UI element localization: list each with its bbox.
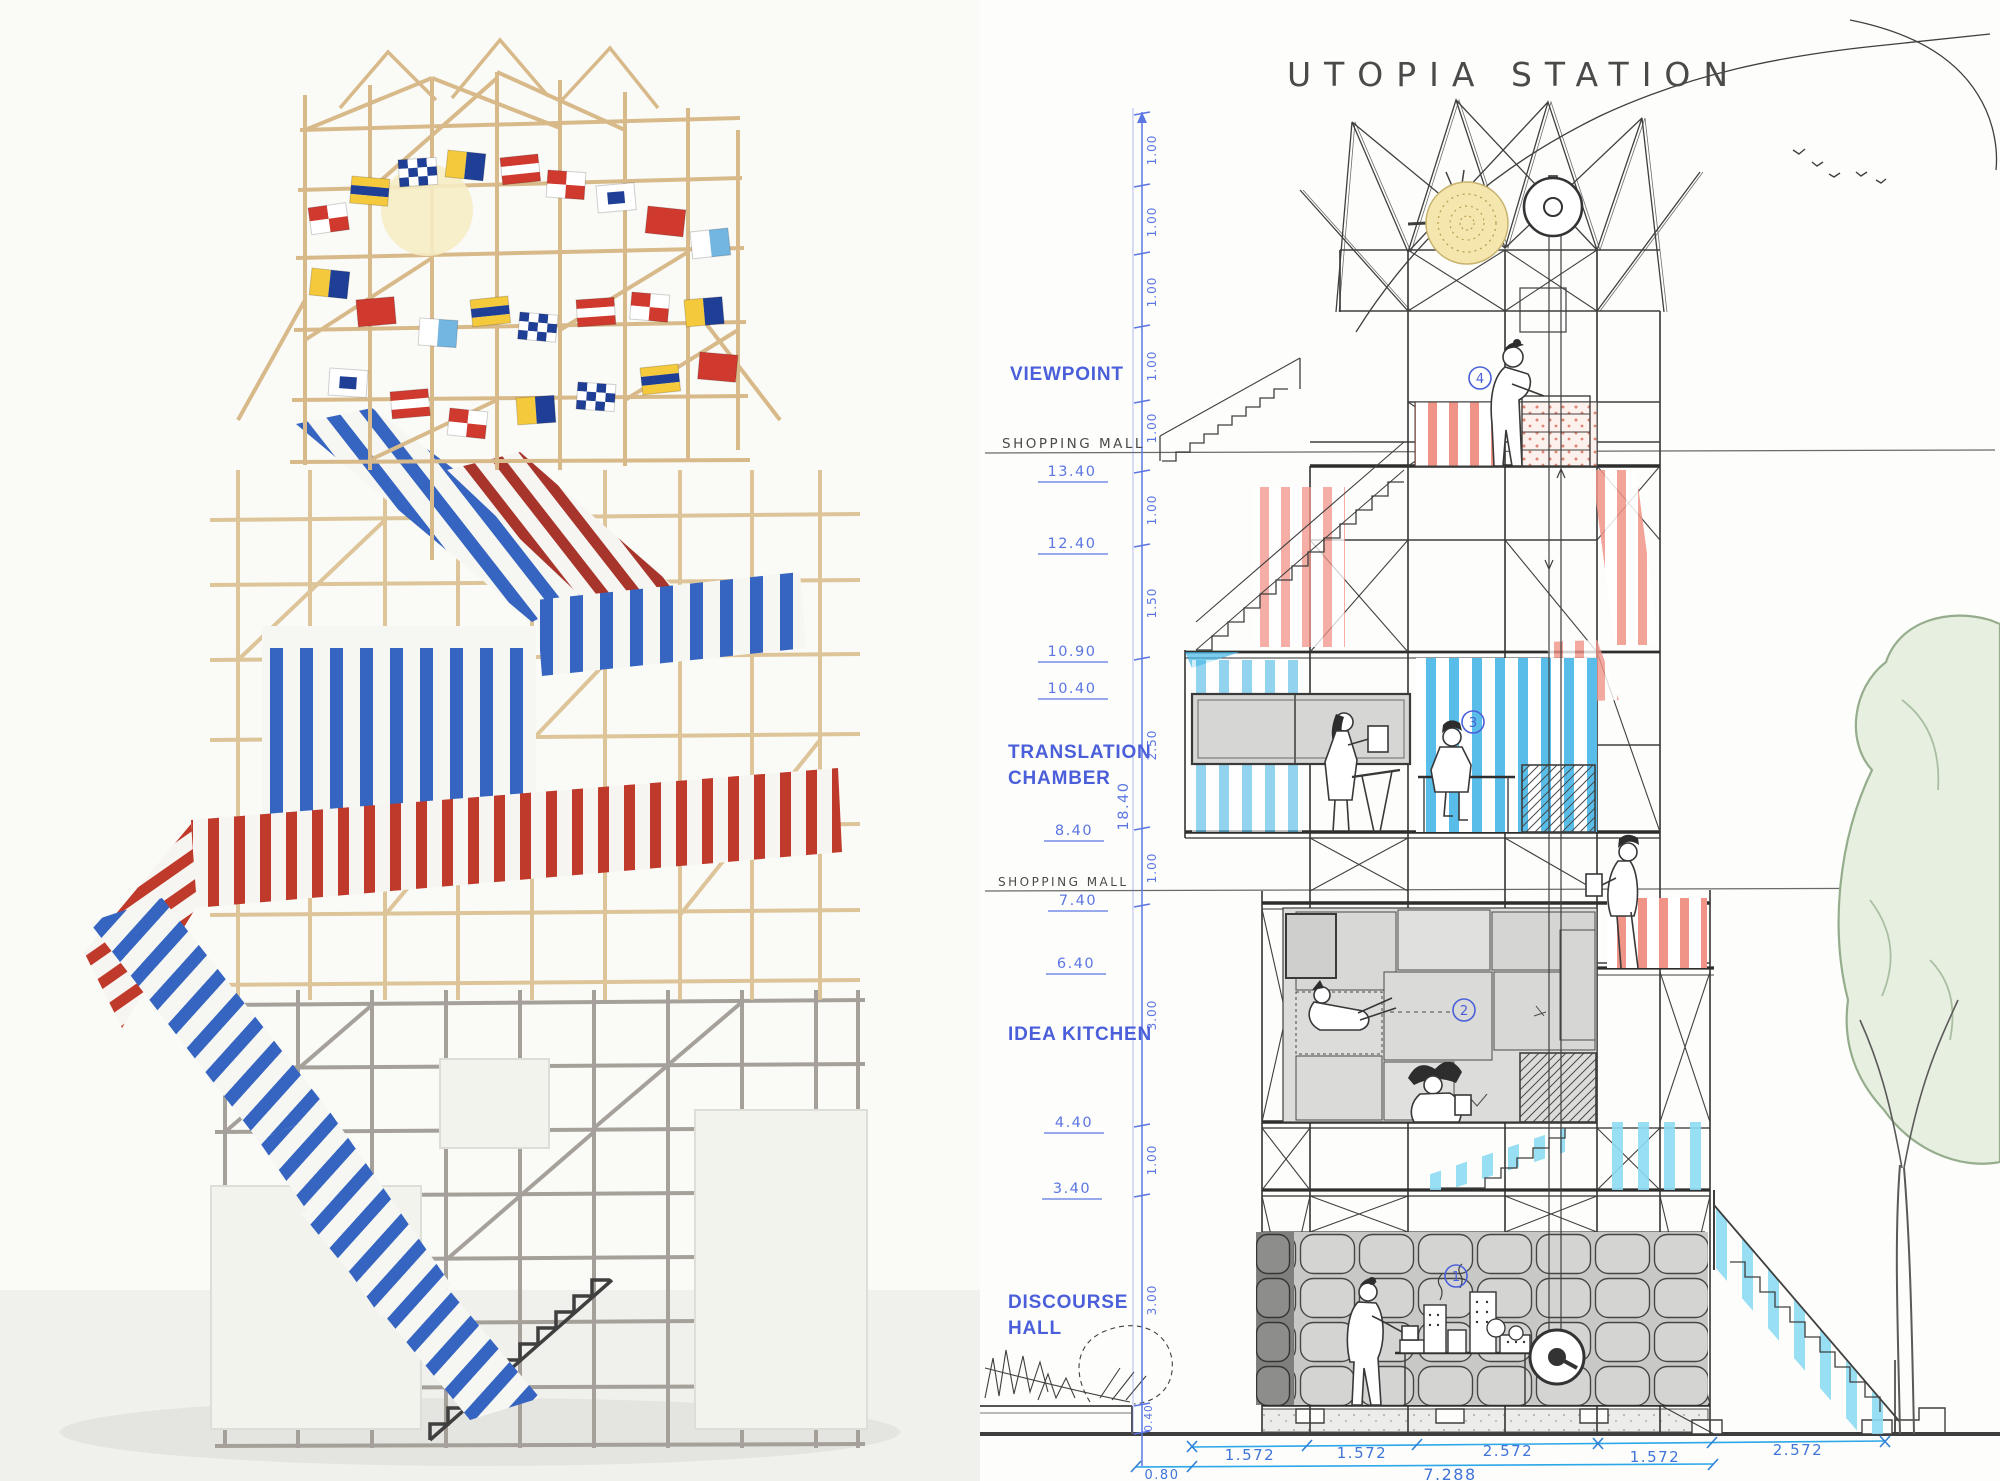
svg-text:1: 1 bbox=[1452, 1270, 1460, 1285]
svg-text:1.50: 1.50 bbox=[1145, 588, 1159, 619]
total-height-label: 18.40 bbox=[1116, 781, 1132, 830]
svg-text:4.40: 4.40 bbox=[1055, 1115, 1093, 1131]
signal-flag-nw-icon bbox=[328, 368, 368, 398]
signal-flag-rh-icon bbox=[500, 154, 541, 185]
svg-text:8.40: 8.40 bbox=[1055, 823, 1093, 839]
pulley-wheel-top bbox=[1524, 176, 1582, 236]
svg-text:12.40: 12.40 bbox=[1047, 536, 1096, 552]
svg-text:1.00: 1.00 bbox=[1145, 853, 1159, 884]
utopia-station-board: UTOPIA STATION bbox=[0, 0, 2000, 1481]
signal-flag-ck-icon bbox=[518, 312, 558, 342]
svg-text:3: 3 bbox=[1469, 716, 1477, 731]
svg-text:2: 2 bbox=[1460, 1004, 1468, 1019]
signal-flag-rd-icon bbox=[645, 206, 686, 237]
model-tree bbox=[1487, 1319, 1505, 1337]
svg-text:0.40: 0.40 bbox=[1143, 1404, 1155, 1431]
hatched-panel bbox=[1522, 765, 1595, 832]
pulley-wheel-bottom bbox=[1530, 1330, 1584, 1384]
signal-flag-ys-icon bbox=[640, 364, 681, 395]
svg-text:2.572: 2.572 bbox=[1483, 1442, 1533, 1460]
svg-text:1.00: 1.00 bbox=[1145, 1145, 1159, 1176]
blue-striped-box bbox=[262, 632, 536, 817]
label-hall: HALL bbox=[1008, 1318, 1062, 1339]
signal-flag-rw-icon bbox=[546, 170, 586, 200]
signal-flag-rw-icon bbox=[630, 292, 670, 322]
signal-flag-bw-icon bbox=[690, 228, 731, 259]
kitchen-window bbox=[1286, 914, 1336, 978]
svg-text:1.572: 1.572 bbox=[1225, 1446, 1275, 1464]
label-idea-kitchen: IDEA KITCHEN bbox=[1008, 1024, 1152, 1045]
drawing-title: UTOPIA STATION bbox=[1287, 55, 1741, 94]
svg-text:2.572: 2.572 bbox=[1773, 1441, 1823, 1459]
svg-text:1.00: 1.00 bbox=[1145, 277, 1159, 308]
svg-text:0.80: 0.80 bbox=[1145, 1468, 1180, 1481]
signal-flag-ck-icon bbox=[398, 157, 438, 187]
svg-text:1.00: 1.00 bbox=[1145, 351, 1159, 382]
svg-text:10.40: 10.40 bbox=[1047, 681, 1096, 697]
svg-text:1.00: 1.00 bbox=[1145, 135, 1159, 166]
label-translation: TRANSLATION bbox=[1008, 742, 1152, 763]
label-shopping-mall-upper: SHOPPING MALL bbox=[1002, 436, 1145, 452]
svg-text:1.572: 1.572 bbox=[1630, 1448, 1680, 1466]
cyan-shaft-stripes bbox=[1602, 1122, 1706, 1190]
svg-text:10.90: 10.90 bbox=[1047, 644, 1096, 660]
signal-flag-rh-icon bbox=[390, 389, 430, 419]
signal-flag-rw-icon bbox=[308, 203, 349, 235]
signal-flag-by-icon bbox=[445, 150, 486, 181]
svg-text:3.00: 3.00 bbox=[1145, 1285, 1159, 1316]
model-photo bbox=[0, 0, 980, 1481]
label-discourse: DISCOURSE bbox=[1008, 1292, 1128, 1313]
svg-text:1.00: 1.00 bbox=[1145, 495, 1159, 526]
signal-flag-bw-icon bbox=[418, 318, 458, 348]
label-viewpoint: VIEWPOINT bbox=[1010, 364, 1124, 385]
svg-text:1.00: 1.00 bbox=[1145, 413, 1159, 444]
signal-flag-rd-icon bbox=[356, 297, 396, 327]
tree-canopy bbox=[1839, 616, 2000, 1164]
signal-flag-by-icon bbox=[684, 297, 724, 327]
signal-flag-rw-icon bbox=[447, 408, 488, 439]
signal-flag-ys-icon bbox=[470, 296, 511, 327]
svg-text:7.40: 7.40 bbox=[1059, 893, 1097, 909]
signal-flag-by-icon bbox=[309, 268, 350, 299]
label-chamber: CHAMBER bbox=[1008, 768, 1111, 789]
signal-flag-rh-icon bbox=[576, 297, 616, 327]
svg-text:1.00: 1.00 bbox=[1145, 207, 1159, 238]
signal-flag-ck-icon bbox=[576, 382, 616, 412]
svg-text:1.572: 1.572 bbox=[1337, 1444, 1387, 1462]
svg-text:3.40: 3.40 bbox=[1053, 1181, 1091, 1197]
red-striped-wall bbox=[1253, 487, 1345, 647]
red-striped-parapet bbox=[1415, 402, 1503, 466]
svg-text:7.288: 7.288 bbox=[1423, 1465, 1476, 1481]
svg-text:6.40: 6.40 bbox=[1057, 956, 1095, 972]
signal-flag-by-icon bbox=[516, 395, 556, 425]
blue-box-roof bbox=[262, 626, 536, 648]
label-shopping-mall-lower: SHOPPING MALL bbox=[998, 875, 1129, 889]
svg-text:13.40: 13.40 bbox=[1047, 464, 1096, 480]
signal-flag-rd-icon bbox=[698, 352, 738, 382]
signal-flag-nw-icon bbox=[596, 183, 636, 213]
stippled-parapet bbox=[1513, 402, 1597, 466]
section-drawing: UTOPIA STATION bbox=[980, 0, 2000, 1481]
signal-flag-ys-icon bbox=[350, 176, 390, 206]
hatched-panel-2 bbox=[1520, 1053, 1596, 1122]
svg-text:4: 4 bbox=[1476, 372, 1484, 387]
